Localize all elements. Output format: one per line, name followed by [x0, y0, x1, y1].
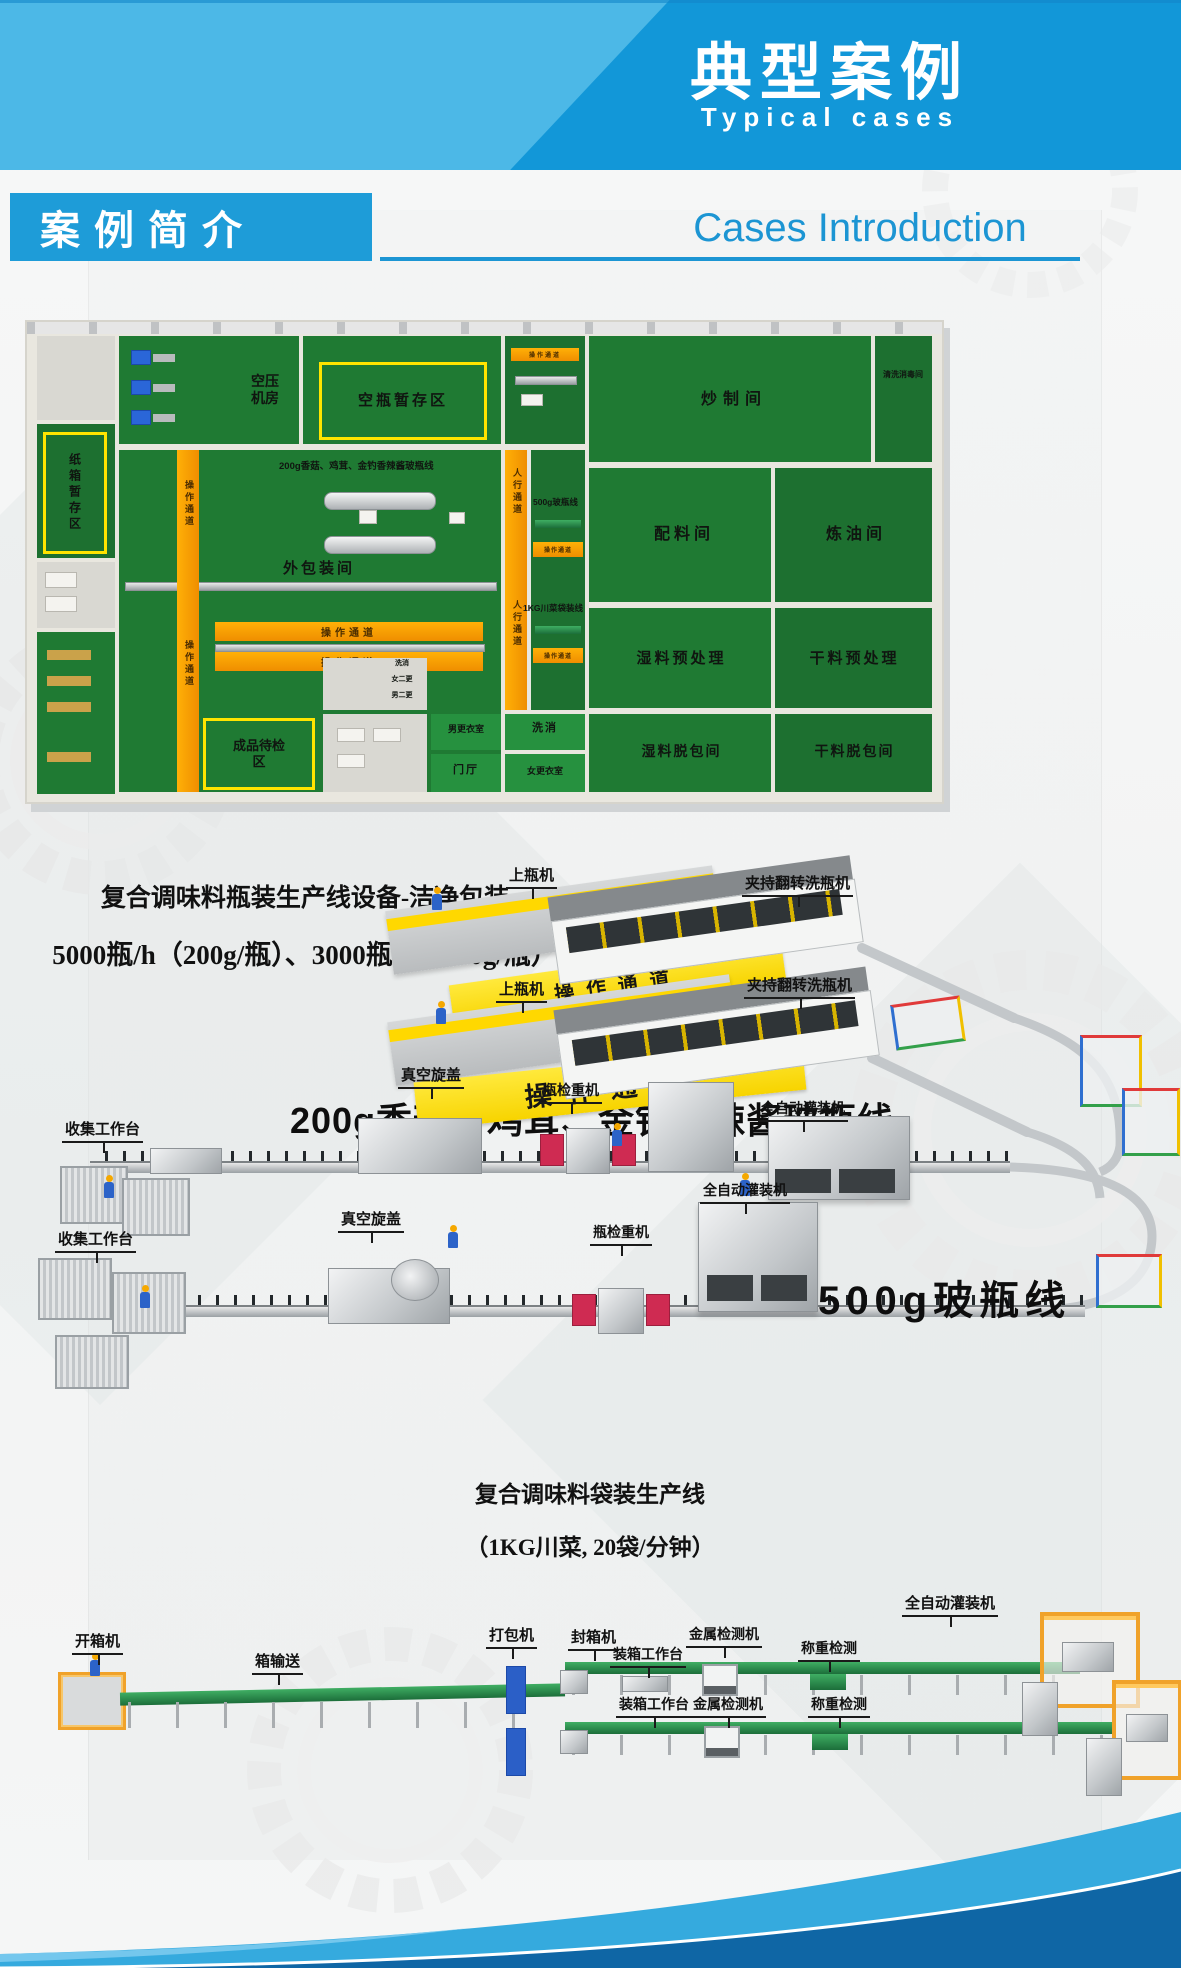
men-changing-room: 男更衣室: [431, 714, 501, 750]
bagging-title-line1: 复合调味料袋装生产线: [380, 1475, 800, 1509]
utility-room: [37, 562, 115, 628]
outer-packaging-hall: 200g香菇、鸡茸、金钓香辣酱玻瓶线 外包装间 操作通道 操作通道 操作通道 操…: [119, 450, 501, 792]
finished-inspection-zone: 成品待检区: [203, 718, 315, 790]
shelf: [47, 676, 91, 686]
guard-red: [540, 1134, 564, 1166]
filler-grill: [761, 1275, 807, 1301]
page-subtitle: Typical cases: [660, 102, 1000, 133]
pallet-rack: [1122, 1088, 1180, 1156]
label-collection-table-2: 收集工作台: [55, 1228, 136, 1253]
worker-figure: [432, 894, 442, 910]
room-label-air-compressor: 空压机房: [247, 366, 283, 414]
plan-line-500g-label: 500g玻瓶线: [533, 496, 578, 508]
air-compressor-room: 空压机房: [119, 336, 299, 444]
strapping-machine: [506, 1728, 526, 1776]
compressor-base: [153, 354, 175, 362]
storage-tank: [324, 492, 436, 510]
cabinet: [337, 754, 365, 768]
ingredient-room: 配料间: [589, 468, 771, 602]
worker-figure: [612, 1130, 622, 1146]
shelf: [47, 702, 91, 712]
walkway-strip: 操作通道: [533, 542, 583, 557]
line-cabinet: [648, 1082, 734, 1172]
walkway-label: 操作通道: [183, 480, 196, 528]
label-metal-detector-2: 金属检测机: [690, 1694, 766, 1718]
room-label-wet-debagging: 湿料脱包间: [614, 742, 749, 762]
bottle-crate: [38, 1258, 112, 1320]
section-label: 案例简介: [40, 198, 256, 256]
label-auto-filler-2: 全自动灌装机: [700, 1180, 790, 1204]
footer-swoosh: [0, 1778, 1181, 1968]
heading-underline: [380, 257, 1080, 261]
label-bottle-loader-1: 上瓶机: [506, 864, 557, 889]
room-label-women-changing: 女更衣室: [513, 766, 577, 777]
room-label-wet-pretreatment: 湿料预处理: [614, 648, 749, 670]
room-label-finished-inspection: 成品待检区: [230, 738, 288, 771]
section-heading-en: Cases Introduction: [640, 206, 1080, 251]
walkway-label: 人行通道: [511, 468, 524, 516]
weigher-body: [566, 1128, 610, 1174]
hall-conveyor: [215, 644, 485, 652]
weight-checker-1: [810, 1674, 846, 1690]
machine: [449, 512, 465, 524]
dry-pretreatment-room: 干料预处理: [775, 608, 932, 708]
filler-grill: [707, 1275, 753, 1301]
walkway-strip: 操作通道: [533, 648, 583, 663]
page-title: 典型案例: [660, 22, 1000, 112]
guard-red: [572, 1294, 596, 1326]
compressor: [131, 350, 151, 365]
belt: [535, 520, 581, 528]
worker-figure: [436, 1008, 446, 1024]
storage-room: [37, 632, 115, 794]
room-label-men-changing: 男更衣室: [435, 724, 497, 735]
carton-opener-machine: [58, 1672, 126, 1730]
label-collection-table-1: 收集工作台: [62, 1118, 143, 1143]
label-packing-table-2: 装箱工作台: [616, 1694, 692, 1718]
walkway-strip: 操作通道: [215, 622, 483, 641]
cabinet: [45, 596, 77, 612]
room-label-frying: 炒制间: [659, 388, 809, 412]
line-500g-slogan: 500g玻瓶线: [818, 1268, 1071, 1326]
carton-storage-room: 纸箱暂存区: [37, 424, 115, 558]
guard-red: [646, 1294, 670, 1326]
label-checkweigher-1: 瓶检重机: [540, 1080, 602, 1104]
room-label-lobby: 门厅: [435, 764, 497, 778]
filler-grill: [839, 1169, 895, 1193]
wet-debagging-room: 湿料脱包间: [589, 714, 771, 792]
washing-room: 洗消: [505, 714, 585, 750]
section-label-box: 案例简介: [10, 193, 372, 261]
label-vacuum-capper-1: 真空旋盖: [398, 1064, 464, 1089]
room-label-carton-storage: 纸箱暂存区: [67, 453, 84, 533]
dry-debagging-room: 干料脱包间: [775, 714, 932, 792]
room-label-oil-refining: 炼油间: [801, 523, 911, 547]
walkway-strip: 操作通道: [511, 348, 579, 361]
women-changing-room: 女更衣室: [505, 754, 585, 792]
vacuum-capper-2: [328, 1268, 450, 1324]
plan-line-1kg-label: 1KG川菜袋装线: [523, 602, 583, 614]
compressor-base: [153, 414, 175, 422]
room-label-washing-small: 洗消: [379, 660, 425, 669]
room-label-tool-washing: 清洗消毒间: [881, 370, 925, 380]
room-label-dry-pretreatment: 干料预处理: [787, 648, 922, 670]
label-checkweigher-2: 瓶检重机: [590, 1222, 652, 1246]
frying-room: 炒制间: [589, 336, 871, 462]
header-top-line: [0, 0, 1181, 3]
shelf: [47, 752, 91, 762]
weight-checker-2: [812, 1734, 848, 1750]
empty-bottle-zone: 空瓶暂存区: [319, 362, 487, 440]
second-changing-cluster: 洗消 女二更 男二更: [323, 658, 427, 710]
conveyor-legs: [128, 1702, 558, 1728]
label-carton-conveyor: 箱输送: [252, 1650, 303, 1675]
label-weight-checker-1: 称重检测: [798, 1638, 860, 1662]
walkway-strip-vertical: 操作通道 操作通道: [177, 450, 199, 792]
strapping-machine: [506, 1666, 526, 1714]
cabinet: [45, 572, 77, 588]
machine: [359, 510, 377, 524]
oil-refining-room: 炼油间: [775, 468, 932, 602]
walkway-label: 操作通道: [533, 651, 583, 660]
bag-line-zone: 500g玻瓶线 操作通道 1KG川菜袋装线 操作通道: [531, 450, 585, 710]
carton-sealer-machine: [560, 1670, 588, 1694]
compressor: [131, 410, 151, 425]
room-label-washing: 洗消: [513, 722, 577, 736]
bagging-title-line2: （1KG川菜, 20袋/分钟）: [380, 1528, 800, 1562]
label-weight-checker-2: 称重检测: [808, 1694, 870, 1718]
roof-beams: [27, 322, 942, 334]
compressor: [131, 380, 151, 395]
packing-table-1: [622, 1676, 668, 1692]
utility-room: [323, 714, 427, 792]
worker-figure: [140, 1292, 150, 1308]
poster-page: 典型案例 Typical cases 案例简介 Cases Introducti…: [0, 0, 1181, 1968]
auto-filler-machine-2: [698, 1202, 818, 1312]
compressor-base: [153, 384, 175, 392]
cabinet: [373, 728, 401, 742]
label-clamp-washer-2: 夹持翻转洗瓶机: [744, 974, 855, 999]
walkway-label: 操作通道: [215, 624, 483, 639]
collection-table-1: [150, 1148, 222, 1174]
room-label-empty-bottle: 空瓶暂存区: [358, 392, 448, 411]
carton-storage-zone: 纸箱暂存区: [43, 432, 107, 554]
walkway-label: 操作通道: [183, 640, 196, 688]
metal-detector-1: [702, 1664, 738, 1696]
vacuum-capper-1: [358, 1118, 482, 1174]
room-label-outer-packaging: 外包装间: [254, 558, 384, 580]
metal-detector-2: [704, 1726, 740, 1758]
pallet-load: [1062, 1642, 1114, 1672]
pedestrian-walkway: 人行通道 人行通道: [505, 450, 527, 710]
label-palletizer: 全自动灌装机: [902, 1592, 998, 1617]
label-auto-filler-1: 全自动灌装机: [758, 1098, 848, 1122]
capper-turret: [391, 1259, 439, 1301]
label-metal-detector-1: 金属检测机: [686, 1624, 762, 1648]
plan-line-200g-label: 200g香菇、鸡茸、金钓香辣酱玻瓶线: [279, 458, 434, 472]
label-carton-opener: 开箱机: [72, 1630, 123, 1655]
pallet-rack: [1096, 1254, 1162, 1308]
empty-bottle-storage-room: 空瓶暂存区: [303, 336, 501, 444]
walkway-label: 操作通道: [533, 545, 583, 554]
label-packing-table-1: 装箱工作台: [610, 1644, 686, 1668]
machine: [521, 394, 543, 406]
palletizer-frame-2: [1112, 1680, 1181, 1780]
bottle-crate: [60, 1166, 128, 1224]
pallet-rack: [890, 995, 966, 1050]
shelf: [47, 650, 91, 660]
lobby-room: 门厅: [431, 754, 501, 792]
label-vacuum-capper-2: 真空旋盖: [338, 1208, 404, 1233]
room-label-men-second: 男二更: [379, 692, 425, 701]
room-label-dry-debagging: 干料脱包间: [787, 742, 922, 762]
walkway-label: 操作通道: [511, 350, 579, 359]
cabinet: [337, 728, 365, 742]
weigher-body: [598, 1288, 644, 1334]
tool-washing-room: 清洗消毒间: [875, 336, 932, 462]
worker-figure: [448, 1232, 458, 1248]
label-clamp-washer-1: 夹持翻转洗瓶机: [742, 872, 853, 897]
room-label-women-second: 女二更: [379, 676, 425, 685]
conveyor: [515, 376, 577, 385]
label-bottle-loader-2: 上瓶机: [496, 978, 547, 1003]
storage-tank: [324, 536, 436, 554]
top-corridor-cell: 操作通道: [505, 336, 585, 444]
label-strapping-machine: 打包机: [486, 1624, 537, 1649]
pallet-load: [1126, 1714, 1168, 1742]
palletizer-cabinet: [1022, 1682, 1058, 1736]
checkweigher-2: [572, 1288, 668, 1332]
room-label-ingredient: 配料间: [629, 523, 739, 547]
bottle-crate: [55, 1335, 129, 1389]
wet-pretreatment-room: 湿料预处理: [589, 608, 771, 708]
carton-sealer-machine: [560, 1730, 588, 1754]
factory-floorplan: 纸箱暂存区 空压机房 空瓶暂存区: [25, 320, 944, 804]
utility-room: [37, 336, 115, 420]
bottling-line-section: 复合调味料瓶装生产线设备-洁净包装 5000瓶/h（200g/瓶）、3000瓶/…: [0, 830, 1181, 1390]
belt: [535, 626, 581, 634]
worker-figure: [104, 1182, 114, 1198]
